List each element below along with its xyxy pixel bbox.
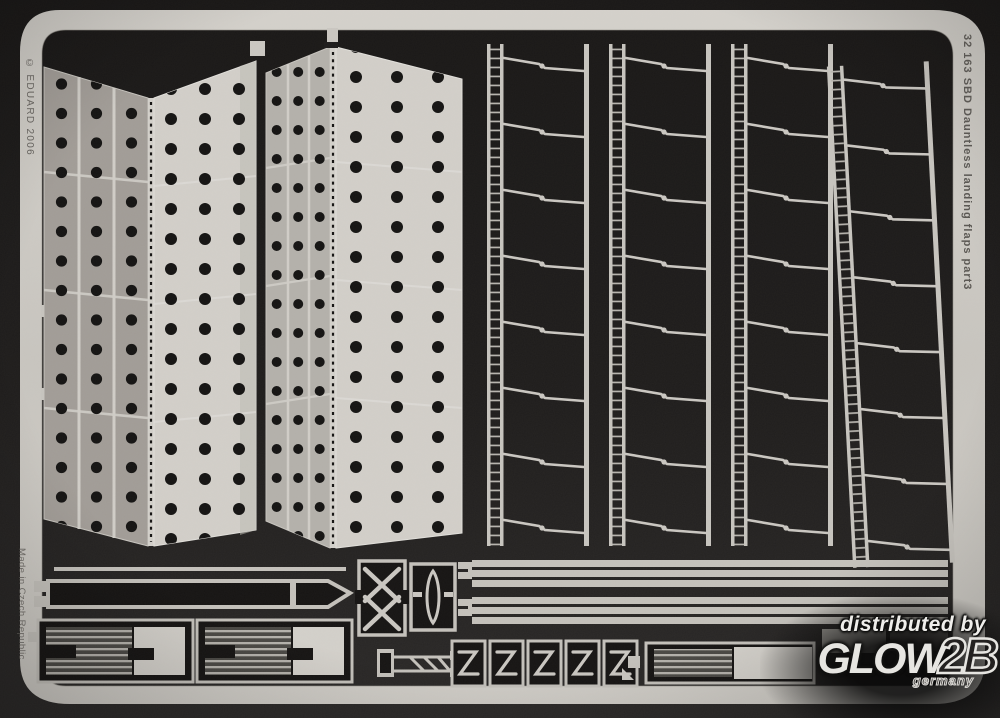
watermark-country-text: germany (785, 673, 1000, 688)
glow2b-watermark: distributed by GLOW2B germany (785, 613, 1000, 718)
product-photo: © EDUARD 2006 Made in Czech Republic 32 … (0, 0, 1000, 718)
fret-code-etched-text: 32 163 SBD Dauntless landing flaps part3 (961, 34, 973, 290)
made-in-etched-text: Made in Czech Republic (16, 548, 27, 660)
copyright-etched-text: © EDUARD 2006 (24, 58, 35, 156)
